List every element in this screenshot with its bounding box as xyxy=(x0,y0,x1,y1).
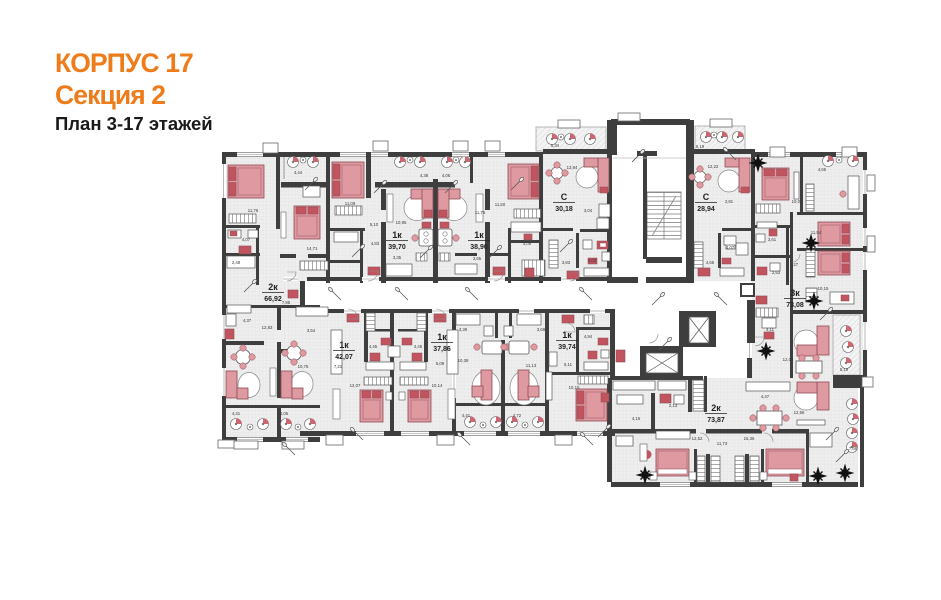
svg-text:3,04: 3,04 xyxy=(584,208,593,213)
svg-text:12,83: 12,83 xyxy=(262,325,273,330)
svg-text:7,21: 7,21 xyxy=(334,364,343,369)
svg-text:3к: 3к xyxy=(790,288,800,298)
svg-text:4,37: 4,37 xyxy=(243,318,252,323)
svg-text:12,52: 12,52 xyxy=(692,436,703,441)
svg-text:4,47: 4,47 xyxy=(761,394,770,399)
svg-text:28,94: 28,94 xyxy=(697,206,715,213)
svg-text:30,18: 30,18 xyxy=(555,206,573,213)
svg-text:14,71: 14,71 xyxy=(307,246,318,251)
svg-text:5,19: 5,19 xyxy=(840,367,849,372)
svg-text:73,87: 73,87 xyxy=(707,417,725,424)
svg-text:37,86: 37,86 xyxy=(433,346,451,353)
svg-text:12,22: 12,22 xyxy=(708,164,719,169)
svg-text:9,27: 9,27 xyxy=(790,262,799,267)
svg-text:11,73: 11,73 xyxy=(717,441,728,446)
svg-text:4,41: 4,41 xyxy=(462,413,471,418)
svg-text:3,39: 3,39 xyxy=(459,327,468,332)
svg-text:4,07: 4,07 xyxy=(242,237,251,242)
svg-text:5,11: 5,11 xyxy=(564,362,573,367)
svg-text:2,81: 2,81 xyxy=(725,199,734,204)
svg-text:2к: 2к xyxy=(711,403,721,413)
svg-text:11,54: 11,54 xyxy=(811,230,822,235)
svg-text:12,02: 12,02 xyxy=(783,357,794,362)
svg-text:10,38: 10,38 xyxy=(458,358,469,363)
svg-text:5,09: 5,09 xyxy=(436,361,445,366)
svg-text:4,05: 4,05 xyxy=(523,241,532,246)
svg-text:4,72: 4,72 xyxy=(513,413,522,418)
svg-text:2к: 2к xyxy=(268,282,278,292)
svg-text:1к: 1к xyxy=(562,330,572,340)
svg-text:2,13: 2,13 xyxy=(669,403,678,408)
svg-text:10,01: 10,01 xyxy=(792,199,803,204)
svg-text:12,07: 12,07 xyxy=(350,383,361,388)
svg-text:План 3-17 этажей: План 3-17 этажей xyxy=(55,113,213,134)
svg-text:4,03: 4,03 xyxy=(588,258,597,263)
svg-text:2,53: 2,53 xyxy=(772,270,781,275)
svg-text:7,85: 7,85 xyxy=(282,300,291,305)
svg-text:3,61: 3,61 xyxy=(768,237,777,242)
svg-text:4,07: 4,07 xyxy=(726,245,735,250)
svg-text:4,05: 4,05 xyxy=(280,411,289,416)
svg-text:4,45: 4,45 xyxy=(414,344,423,349)
svg-text:С: С xyxy=(703,192,710,202)
svg-text:11,09: 11,09 xyxy=(345,201,356,206)
svg-text:38,90: 38,90 xyxy=(470,244,488,251)
svg-text:73,08: 73,08 xyxy=(786,302,804,309)
svg-text:Секция 2: Секция 2 xyxy=(55,80,165,110)
svg-text:12,56: 12,56 xyxy=(794,410,805,415)
svg-text:С: С xyxy=(561,192,568,202)
svg-text:4,44: 4,44 xyxy=(294,170,303,175)
svg-text:4,16: 4,16 xyxy=(632,416,641,421)
svg-text:3,65: 3,65 xyxy=(473,256,482,261)
svg-text:10,95: 10,95 xyxy=(396,220,407,225)
svg-text:4,83: 4,83 xyxy=(371,241,380,246)
svg-text:3,54: 3,54 xyxy=(307,328,316,333)
svg-text:1к: 1к xyxy=(437,332,447,342)
svg-text:1к: 1к xyxy=(474,230,484,240)
svg-text:4,65: 4,65 xyxy=(706,260,715,265)
svg-text:4,45: 4,45 xyxy=(369,344,378,349)
svg-text:3,69: 3,69 xyxy=(537,327,546,332)
svg-text:11,13: 11,13 xyxy=(526,363,537,368)
svg-text:3,83: 3,83 xyxy=(562,260,571,265)
svg-text:10,15: 10,15 xyxy=(569,385,580,390)
svg-text:10,75: 10,75 xyxy=(298,364,309,369)
svg-text:КОРПУС 17: КОРПУС 17 xyxy=(55,48,193,78)
svg-text:11,76: 11,76 xyxy=(248,208,259,213)
svg-text:39,74: 39,74 xyxy=(558,344,576,351)
svg-text:39,70: 39,70 xyxy=(388,244,406,251)
svg-text:5,10: 5,10 xyxy=(370,222,379,227)
svg-text:1к: 1к xyxy=(339,340,349,350)
svg-text:5,19: 5,19 xyxy=(696,144,705,149)
svg-text:3,35: 3,35 xyxy=(393,255,402,260)
svg-text:66,92: 66,92 xyxy=(264,296,282,303)
svg-text:2,48: 2,48 xyxy=(232,260,241,265)
svg-text:13,94: 13,94 xyxy=(567,165,578,170)
svg-text:4,65: 4,65 xyxy=(818,167,827,172)
svg-text:1к: 1к xyxy=(392,230,402,240)
svg-text:4,06: 4,06 xyxy=(442,173,451,178)
svg-text:5,34: 5,34 xyxy=(551,143,560,148)
svg-text:15,36: 15,36 xyxy=(744,436,755,441)
svg-text:42,07: 42,07 xyxy=(335,354,353,361)
svg-text:4,11: 4,11 xyxy=(766,327,775,332)
svg-text:10,15: 10,15 xyxy=(818,286,829,291)
svg-text:10,14: 10,14 xyxy=(432,383,443,388)
svg-text:4,41: 4,41 xyxy=(232,411,241,416)
svg-text:7,68: 7,68 xyxy=(849,446,858,451)
svg-text:11,50: 11,50 xyxy=(495,202,506,207)
svg-text:11,75: 11,75 xyxy=(475,210,486,215)
svg-text:4,94: 4,94 xyxy=(584,334,593,339)
svg-text:4,38: 4,38 xyxy=(420,173,429,178)
